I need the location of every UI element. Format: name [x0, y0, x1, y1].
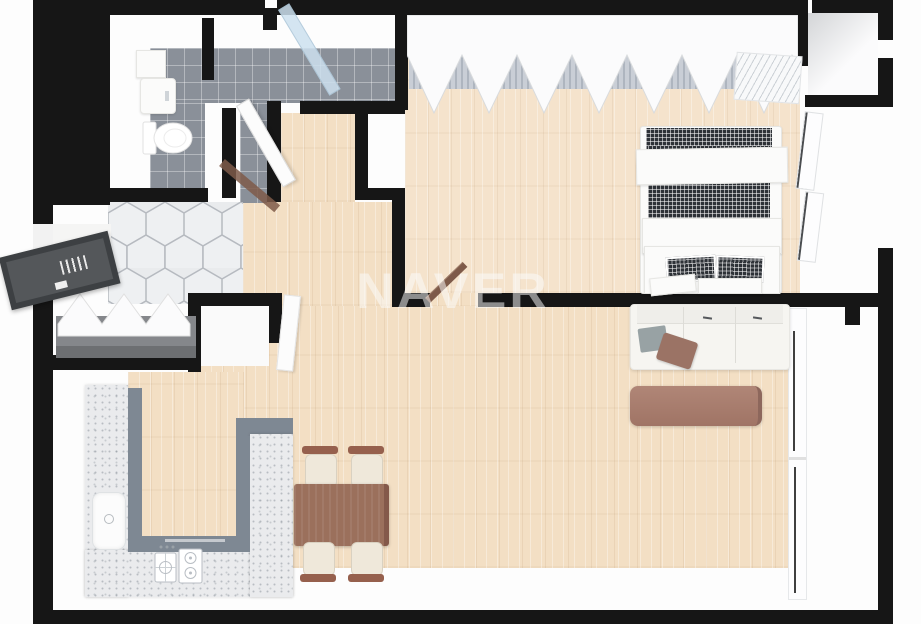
chair-seat — [303, 542, 335, 576]
kitchen-counter-right — [250, 434, 293, 597]
bathroom-cabinet — [136, 50, 166, 78]
wall-bath-partition-upper — [202, 18, 214, 80]
bed-foot-fold-right — [698, 278, 762, 294]
floorplan: NAVER — [0, 0, 921, 624]
bathroom-sink — [140, 78, 176, 114]
kitchen-counter-inner-face-left — [128, 388, 142, 552]
dining-chair-top-right — [346, 446, 386, 488]
bathroom-tile-floor — [150, 48, 395, 103]
bed-white-band-top — [636, 147, 789, 186]
wall-bath-bottom-left — [108, 188, 208, 202]
kitchen-inner-floor — [128, 372, 244, 544]
sink-drain-icon — [104, 514, 114, 524]
wall-bath-partition-lower — [222, 108, 236, 198]
wall-utility-bottom — [805, 95, 893, 107]
bedroom-window-2 — [797, 191, 824, 263]
window-frame-line-2 — [794, 467, 796, 593]
wall-closet-top — [188, 293, 282, 306]
wall-balcony-pier — [845, 307, 860, 325]
dining-chair-top-left — [300, 446, 340, 488]
dining-chair-bottom-right — [346, 540, 386, 582]
wall-step-b — [368, 188, 405, 200]
entry-hex-floor — [108, 202, 243, 304]
window-frame-line-1 — [793, 331, 795, 451]
utility-room-floor — [808, 13, 878, 95]
kitchen-sink — [92, 492, 126, 550]
faucet-icon — [165, 91, 169, 101]
sofa — [630, 304, 790, 370]
coffee-table — [630, 386, 762, 426]
dining-table — [294, 484, 389, 546]
air-conditioner — [733, 52, 802, 104]
chair-back — [348, 574, 384, 582]
wall-bath-bottom-right — [300, 101, 405, 114]
chair-seat — [305, 454, 337, 488]
corridor-nook-floor — [281, 113, 355, 202]
double-bed — [636, 124, 786, 294]
wall-bottom — [33, 610, 893, 624]
chair-seat — [351, 542, 383, 576]
sofa-seam-2 — [735, 307, 736, 363]
sofa-pillow-mauve — [656, 332, 699, 370]
kitchen-counter-inner-face-right — [236, 436, 250, 536]
gas-stove — [153, 542, 205, 586]
wall-top-a — [108, 0, 265, 15]
naver-watermark: NAVER — [356, 266, 550, 316]
chair-back — [300, 574, 336, 582]
building-core-block — [33, 0, 110, 205]
chair-seat — [351, 454, 383, 488]
wall-step-a — [355, 110, 368, 200]
wall-top-b — [277, 0, 800, 15]
window-sash-divider — [789, 457, 806, 460]
sofa-back-cushions — [637, 305, 783, 324]
chair-back — [302, 446, 338, 454]
chair-back — [348, 446, 384, 454]
wall-top-window-stub — [263, 8, 277, 30]
wall-right-top-a — [878, 0, 893, 40]
daybed — [56, 290, 196, 368]
living-room-window — [788, 308, 807, 600]
storage-closet-interior — [201, 306, 269, 366]
toilet — [142, 118, 196, 158]
dining-chair-bottom-left — [298, 540, 338, 582]
